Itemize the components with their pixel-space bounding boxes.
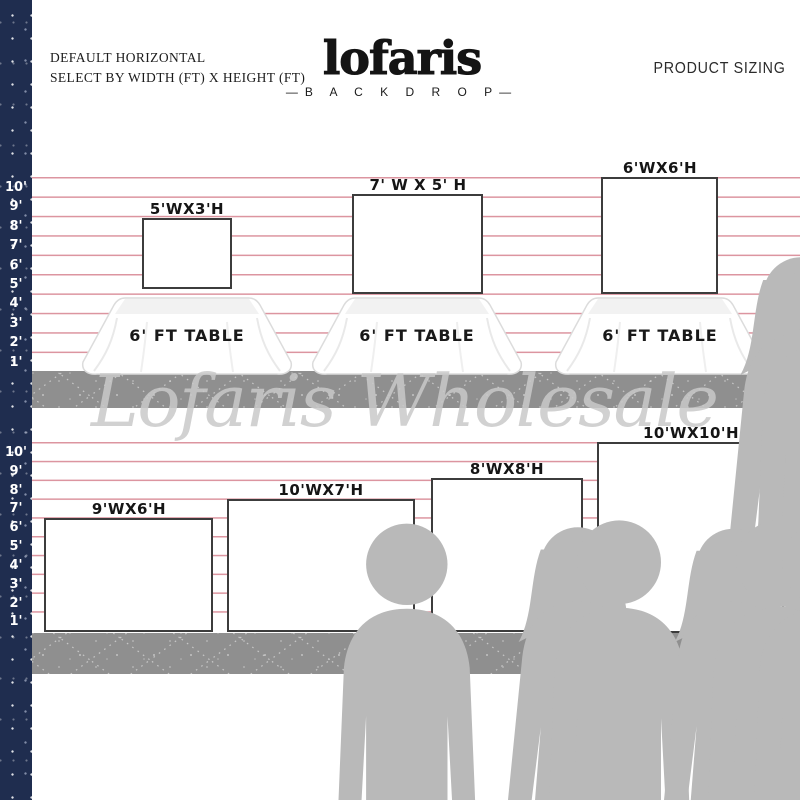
ruler-label: 6' [0, 520, 32, 535]
ruler-label: 2' [0, 596, 32, 611]
ruler-label: 10' [0, 180, 32, 195]
table-label: 6' FT TABLE [332, 326, 502, 345]
product-sizing-chart: Lofaris Wholesale DEFAULT HORIZONTAL SEL… [0, 0, 800, 800]
ruler-label: 7' [0, 501, 32, 516]
ruler-label: 8' [0, 219, 32, 234]
subtitle-line2: SELECT BY WIDTH (FT) X HEIGHT (FT) [50, 68, 305, 88]
backdrop-size-label: 9'WX6'H [44, 500, 214, 518]
ruler-label: 10' [0, 445, 32, 460]
backdrop-box-6x6 [602, 178, 717, 293]
ruler-label: 4' [0, 558, 32, 573]
backdrop-box-7x5 [353, 195, 482, 293]
sizing-scene-graphic: Lofaris Wholesale [0, 0, 800, 800]
ruler-label: 5' [0, 277, 32, 292]
brand-logo-subtext: —B A C K D R O P— [282, 85, 522, 99]
ruler-label: 1' [0, 614, 32, 629]
ruler-label: 6' [0, 258, 32, 273]
table-label: 6' FT TABLE [575, 326, 745, 345]
left-border-panel [0, 0, 32, 800]
ruler-label: 7' [0, 238, 32, 253]
backdrop-size-label: 8'WX8'H [422, 460, 592, 478]
subtitle: DEFAULT HORIZONTAL SELECT BY WIDTH (FT) … [50, 48, 305, 88]
backdrop-size-label: 10'WX10'H [606, 424, 776, 442]
backdrop-size-label: 5'WX3'H [102, 200, 272, 218]
backdrop-size-label: 7' W X 5' H [333, 176, 503, 194]
backdrop-box-5x3 [143, 219, 231, 288]
ruler-label: 9' [0, 464, 32, 479]
brand-logo: lofaris —B A C K D R O P— [282, 34, 522, 99]
ruler-label: 8' [0, 483, 32, 498]
backdrop-size-label: 6'WX6'H [575, 159, 745, 177]
table-label: 6' FT TABLE [102, 326, 272, 345]
ruler-label: 1' [0, 355, 32, 370]
ruler-label: 3' [0, 577, 32, 592]
ruler-label: 2' [0, 335, 32, 350]
ruler-label: 3' [0, 316, 32, 331]
ruler-label: 5' [0, 539, 32, 554]
brand-logo-text: lofaris [282, 34, 522, 82]
ruler-label: 4' [0, 296, 32, 311]
subtitle-line1: DEFAULT HORIZONTAL [50, 48, 305, 68]
backdrop-size-label: 10'WX7'H [236, 481, 406, 499]
ruler-label: 9' [0, 199, 32, 214]
page-title: PRODUCT SIZING [654, 60, 786, 78]
backdrop-box-9x6 [45, 519, 212, 631]
